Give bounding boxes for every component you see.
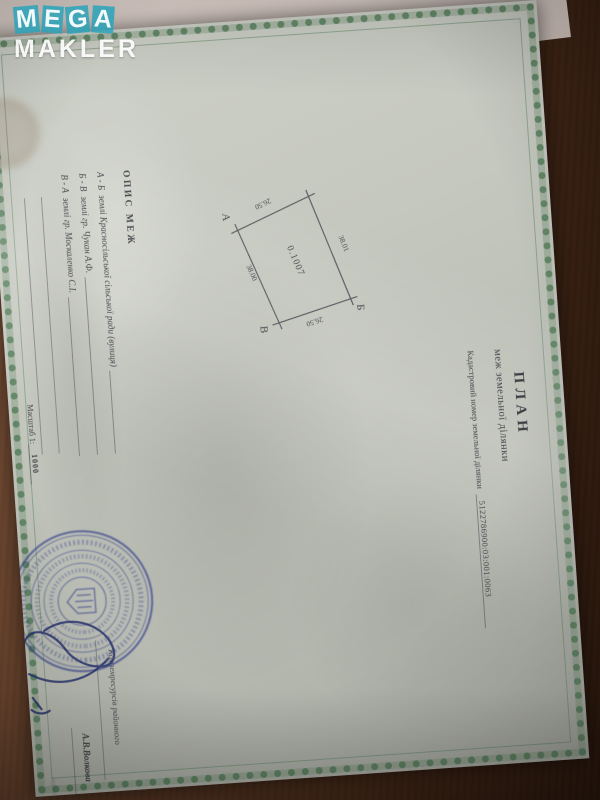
signature-small-label: підпис	[49, 778, 56, 795]
handwritten-signature	[13, 605, 133, 762]
watermark-word-mega: M E G A	[14, 6, 139, 33]
cadastral-underline-tail	[483, 604, 495, 629]
watermark-word-makler: MAKLER	[14, 35, 139, 64]
boundary-2-points: Б - В	[77, 173, 88, 192]
side-length-right: 26.50	[305, 315, 324, 329]
stamp-emblem-trident	[75, 594, 94, 607]
boundary-1-points: А - Б	[95, 172, 106, 191]
land-plan-document: ПЛАН меж земельної ділянки Кадастровий н…	[0, 0, 589, 797]
boundary-3-points: В - А	[59, 174, 70, 193]
watermark-letter: E	[41, 5, 64, 33]
agency-watermark: M E G A MAKLER	[14, 6, 139, 64]
watermark-letter: A	[91, 5, 115, 33]
scale-label: Масштаб 1:	[25, 404, 37, 444]
vertex-label-b: Б	[354, 304, 366, 311]
side-length-top: 38.01	[336, 234, 351, 253]
vertex-label-v: В	[257, 325, 269, 333]
watermark-letter: M	[13, 5, 40, 34]
parcel-area-value: 0.1007	[284, 244, 306, 277]
parcel-diagram: А Б В 26.50 38.01 26.50 38.00 0.1007	[189, 128, 405, 381]
side-length-left: 26.50	[253, 196, 272, 212]
side-length-bottom: 38.00	[244, 263, 259, 282]
watermark-letter: G	[64, 5, 90, 34]
vertex-label-a: А	[219, 213, 232, 222]
